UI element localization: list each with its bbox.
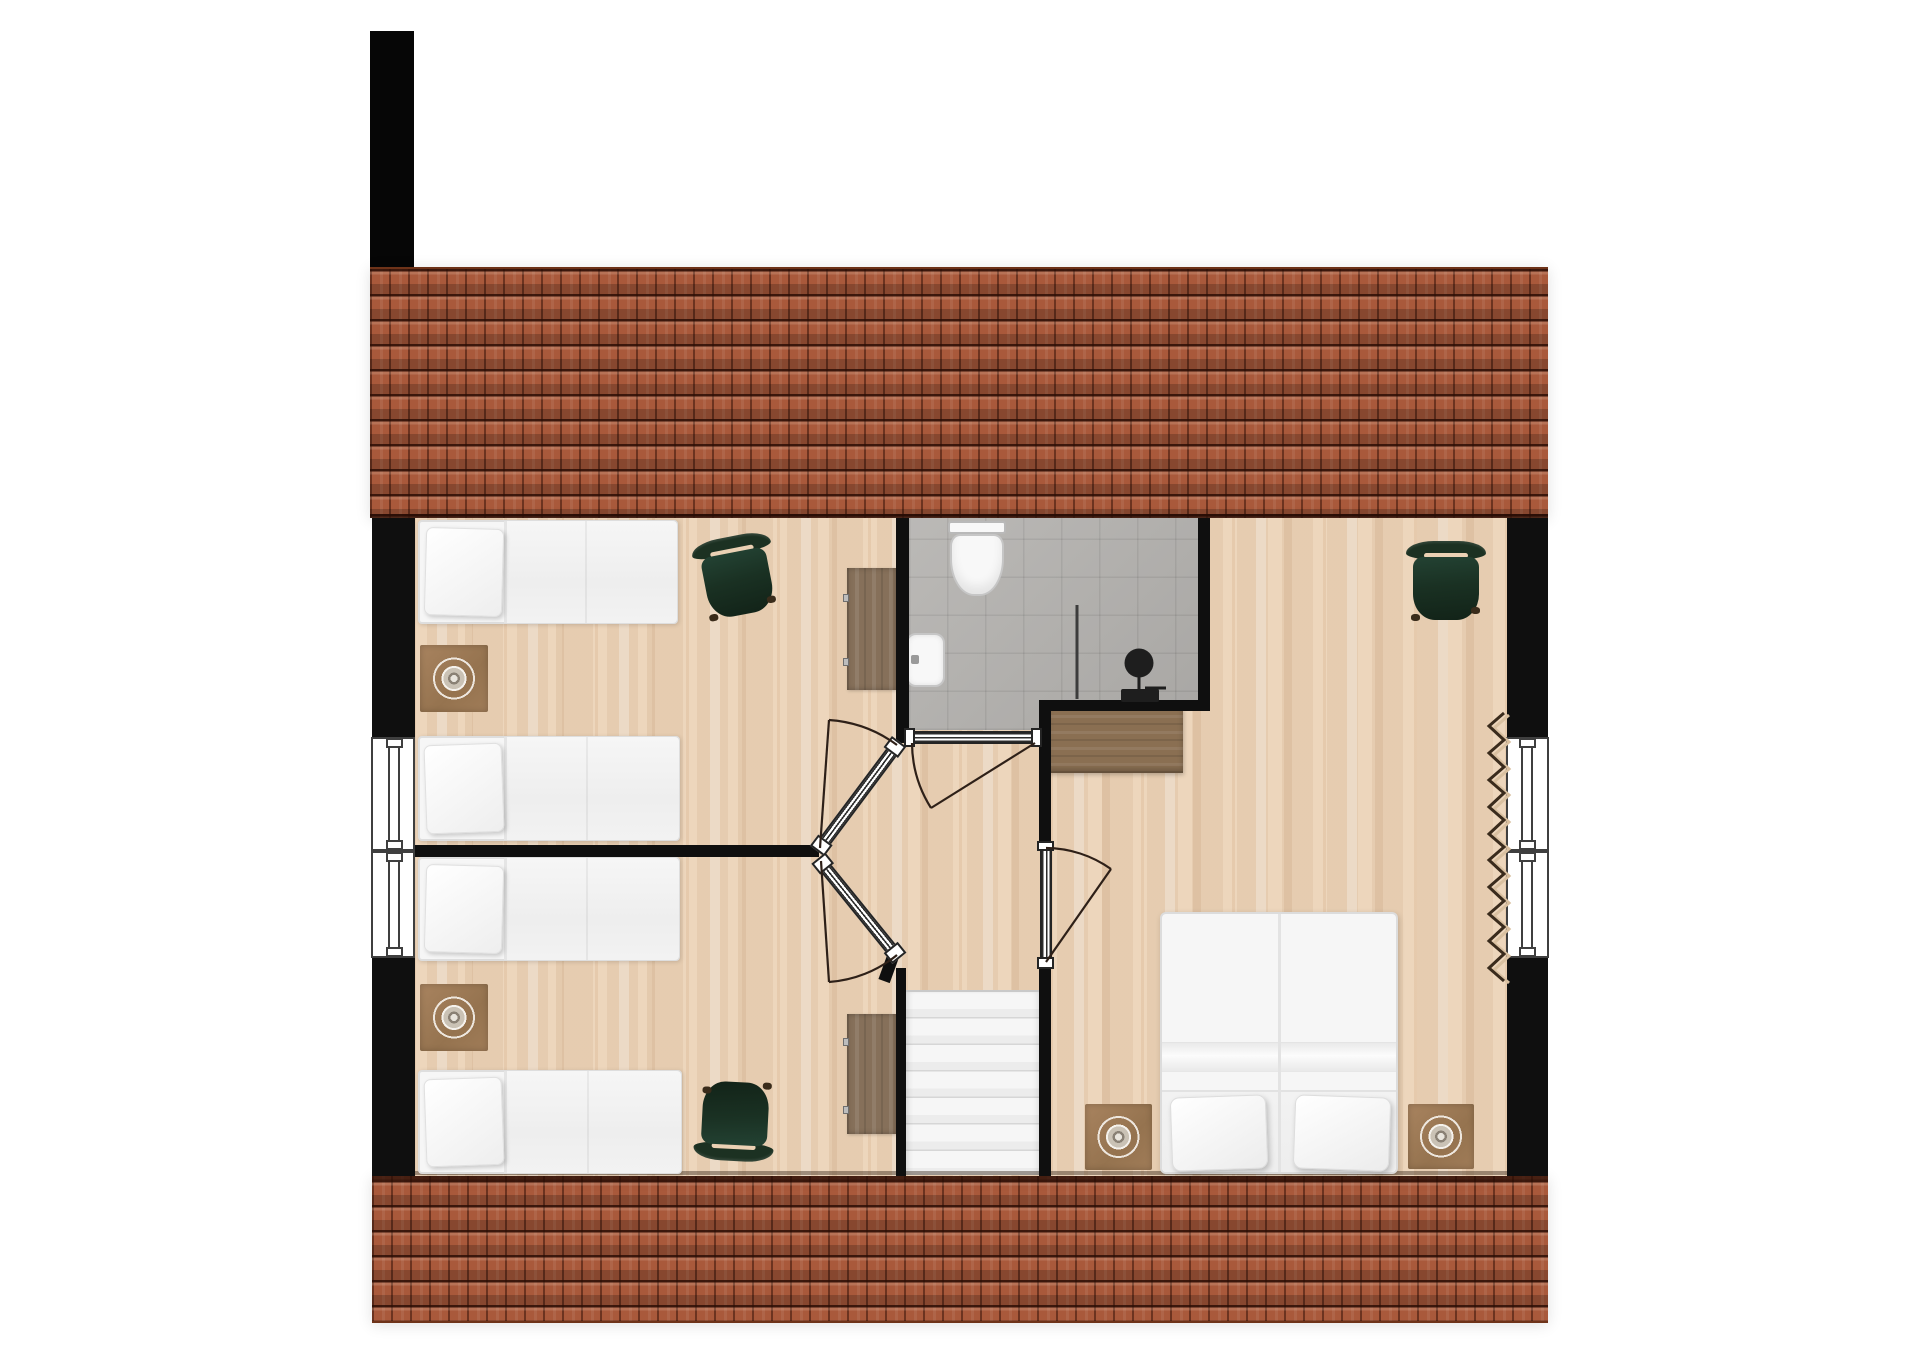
window-right-upper [1506, 737, 1549, 851]
lamp-icon [420, 984, 488, 1051]
bathroom-wall-step [1039, 700, 1051, 847]
glazing [1521, 862, 1533, 947]
floor-plan-canvas [0, 0, 1920, 1358]
door-hinge-block [1037, 957, 1054, 969]
door-bathroom [904, 728, 1048, 747]
drawer-handle [843, 1038, 849, 1046]
window-sill [1519, 840, 1536, 850]
single-bed-3 [418, 857, 680, 961]
double-bed [1160, 912, 1398, 1174]
bathroom-wall-left [896, 518, 909, 743]
pillow [424, 864, 504, 954]
lamp-icon [1408, 1104, 1474, 1169]
chimney [370, 31, 414, 267]
window-right-lower [1506, 851, 1549, 958]
sideboard [1048, 708, 1183, 773]
stairwell-wall-left [896, 968, 906, 1176]
desk-bottom-left-room [847, 1014, 896, 1134]
window-sill [386, 947, 403, 957]
drawer-handle [843, 594, 849, 602]
chair-leg [702, 1086, 711, 1093]
toilet-tank [948, 521, 1006, 534]
duvet [504, 858, 679, 960]
pillow [1170, 1094, 1269, 1171]
chair-seat [700, 546, 777, 620]
tap-icon [911, 655, 919, 664]
glazing [1521, 748, 1533, 840]
window-left-lower [371, 851, 415, 958]
pillow [1293, 1094, 1392, 1171]
staircase [906, 990, 1039, 1175]
glazing [388, 748, 400, 840]
duvet [504, 1071, 681, 1173]
pillow [423, 1077, 504, 1168]
glazing [388, 862, 400, 947]
window-sill [1519, 738, 1536, 748]
window-sill [1519, 947, 1536, 957]
window-sill [386, 840, 403, 850]
chair-bottom-left-room [696, 1077, 774, 1163]
duvet [504, 521, 677, 623]
chair-leg [1471, 607, 1480, 614]
window-sill [386, 852, 403, 862]
hall-wall-master-door [1039, 963, 1051, 1176]
window-left-upper [371, 737, 415, 851]
lamp-icon [420, 645, 488, 712]
door-hinge-block [904, 728, 915, 747]
door-master-bedroom [1037, 841, 1054, 969]
door-hinge-block [1037, 841, 1054, 851]
door-leaf [1040, 849, 1052, 959]
window-sill [386, 738, 403, 748]
washbasin [906, 633, 945, 687]
bedside-rug-lamp-3 [1085, 1104, 1152, 1170]
bathroom-wall-right [1198, 518, 1210, 711]
single-bed-1 [418, 520, 678, 624]
chair-master-room [1409, 541, 1483, 623]
roof-bottom-section [372, 1176, 1548, 1323]
door-hinge-block [1031, 728, 1042, 747]
bedside-rug-lamp-1 [420, 645, 488, 712]
chair-top-left-room [693, 530, 781, 625]
duvet [504, 737, 679, 840]
chair-leg [1411, 614, 1420, 621]
interior-wall-bedrooms [413, 845, 819, 857]
pillow [424, 527, 504, 617]
bedside-rug-lamp-4 [1408, 1104, 1474, 1169]
chair-leg [766, 595, 776, 604]
single-bed-2 [418, 736, 680, 841]
door-leaf [911, 731, 1037, 744]
single-bed-4 [418, 1070, 682, 1174]
chair-seat [1413, 557, 1479, 620]
chair-leg [763, 1082, 772, 1089]
bedside-rug-lamp-2 [420, 984, 488, 1051]
chair-leg [709, 613, 719, 622]
roof-top-section [370, 267, 1548, 518]
desk-top-left-room [847, 568, 896, 690]
mattress-seam [1278, 914, 1281, 1172]
pillow [423, 743, 504, 835]
window-sill [1519, 852, 1536, 862]
drawer-handle [843, 1106, 849, 1114]
drawer-handle [843, 658, 849, 666]
bathroom-wall-bottom [1039, 700, 1210, 711]
lamp-icon [1085, 1104, 1152, 1170]
